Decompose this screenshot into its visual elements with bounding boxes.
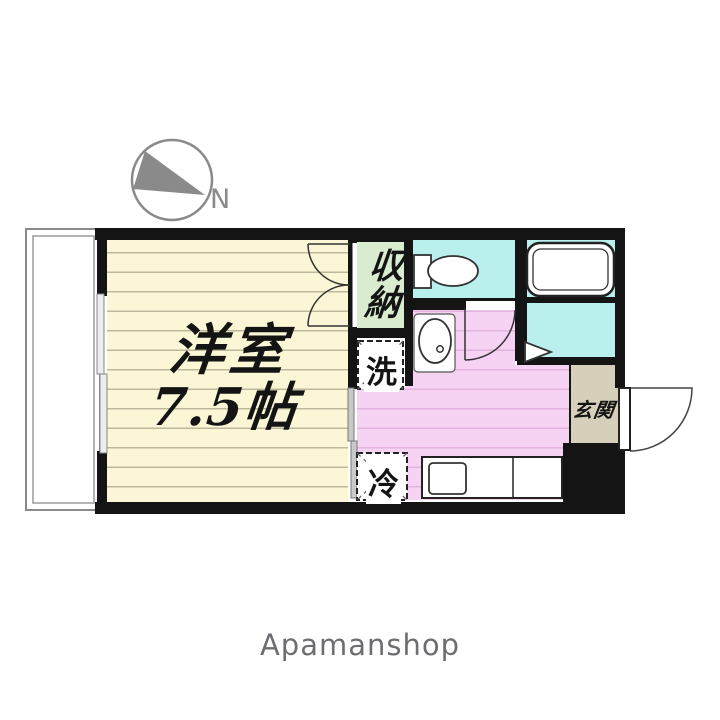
window-left-lower <box>100 374 107 453</box>
compass <box>132 140 212 220</box>
entrance-door-leaf <box>619 388 630 450</box>
kitchen-counter <box>422 457 562 498</box>
toilet <box>414 255 478 288</box>
main-room-size: 7.5帖 <box>106 380 342 436</box>
toilet-bowl <box>428 256 478 286</box>
entrance-label: 玄関 <box>571 394 617 423</box>
wall-bottom <box>95 502 573 514</box>
floor-plan-drawing <box>0 0 720 720</box>
wall-left-upper <box>97 240 107 296</box>
washing-machine-label: 洗 <box>364 347 399 392</box>
brand-logo-text: Apamanshop <box>0 628 720 662</box>
bathtub <box>527 243 614 296</box>
wall-left-lower <box>97 451 107 503</box>
balcony <box>26 229 100 510</box>
wall-mid-vertical <box>515 228 527 361</box>
compass-north-label: N <box>210 184 230 215</box>
wall-top <box>95 228 625 240</box>
wall-corner-block <box>563 443 625 514</box>
floor-plan-page: 洋室 7.5帖 収納 洗 冷 玄関 N Apamanshop <box>0 0 720 720</box>
basin-drain <box>437 346 443 352</box>
closet-label: 収納 <box>357 247 405 321</box>
main-room-name: 洋室 <box>112 320 348 380</box>
wall-toilet-bottom <box>405 298 466 310</box>
sliding-door-upper-panel <box>348 388 354 441</box>
entrance-door <box>619 388 692 451</box>
entrance-step-line <box>569 365 571 443</box>
window-left-upper <box>97 294 104 374</box>
wash-basin <box>414 314 455 372</box>
toilet-doorway-line <box>466 298 515 301</box>
closet-back-panel <box>353 243 358 327</box>
wall-closet-bottom <box>353 329 413 338</box>
wall-closet-right <box>405 240 413 386</box>
refrigerator-label: 冷 <box>366 459 401 504</box>
kitchen-sink <box>429 463 466 494</box>
main-room-label: 洋室 7.5帖 <box>106 320 348 436</box>
wall-bath-divider <box>527 297 615 303</box>
